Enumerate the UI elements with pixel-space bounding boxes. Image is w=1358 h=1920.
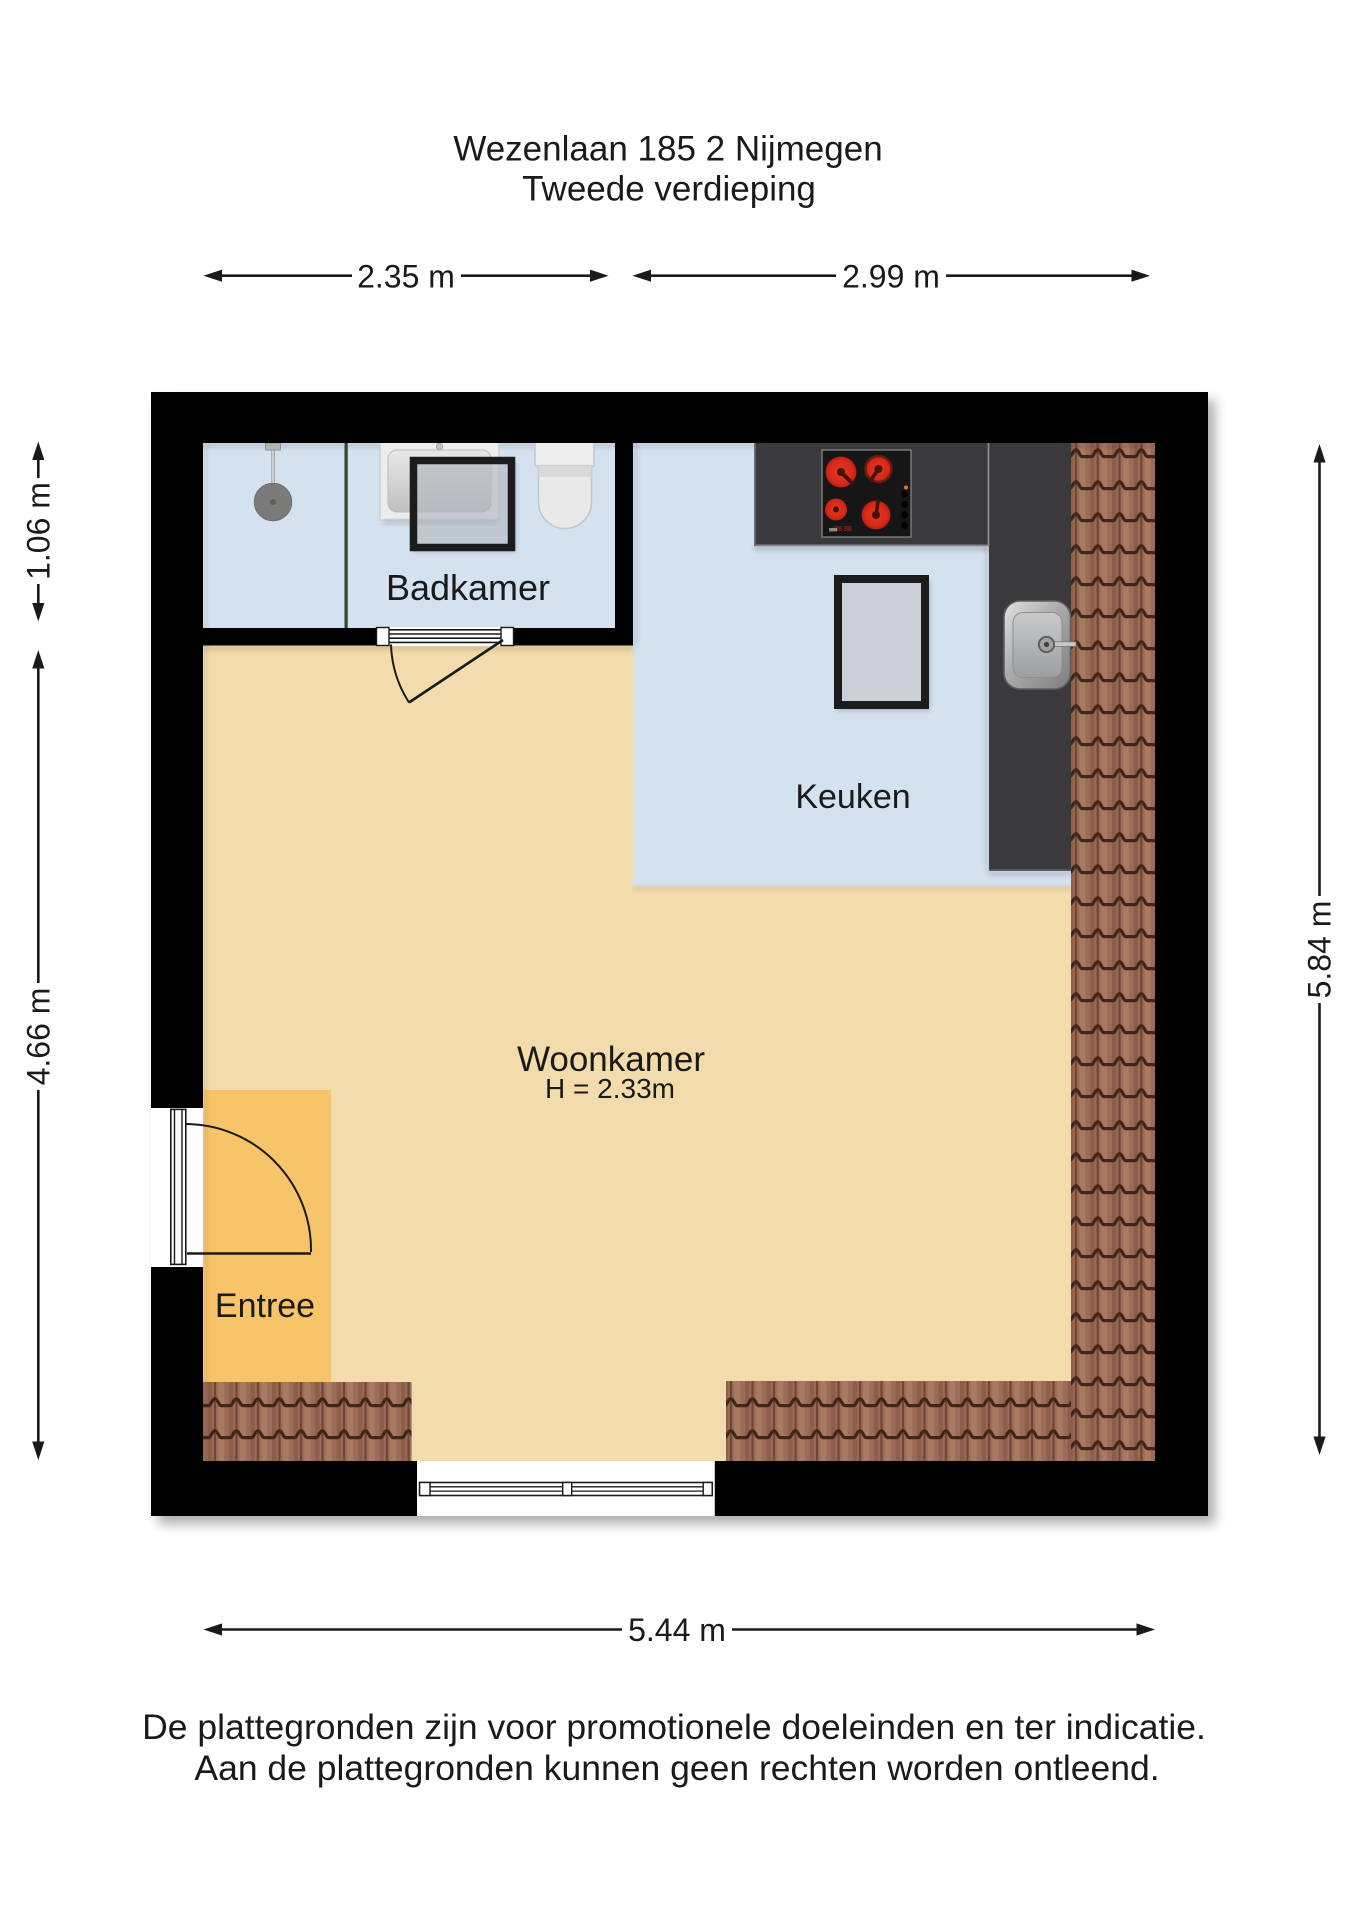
svg-text:4.66 m: 4.66 m <box>20 988 56 1086</box>
svg-text:Wezenlaan 185 2 Nijmegen: Wezenlaan 185 2 Nijmegen <box>453 130 882 169</box>
svg-text:5.44 m: 5.44 m <box>628 1612 726 1648</box>
svg-text:Tweede verdieping: Tweede verdieping <box>522 170 816 209</box>
svg-text:1.06 m: 1.06 m <box>20 482 56 580</box>
svg-text:2.99 m: 2.99 m <box>842 259 940 295</box>
svg-text:H = 2.33m: H = 2.33m <box>545 1073 675 1104</box>
svg-text:De plattegronden zijn voor pro: De plattegronden zijn voor promotionele … <box>142 1707 1206 1747</box>
svg-text:Aan de plattegronden kunnen ge: Aan de plattegronden kunnen geen rechten… <box>194 1748 1159 1788</box>
svg-text:2.35 m: 2.35 m <box>357 259 455 295</box>
svg-text:Badkamer: Badkamer <box>386 567 550 608</box>
svg-text:Entree: Entree <box>215 1287 315 1325</box>
svg-text:5.84 m: 5.84 m <box>1302 901 1338 999</box>
svg-text:Keuken: Keuken <box>795 778 910 816</box>
